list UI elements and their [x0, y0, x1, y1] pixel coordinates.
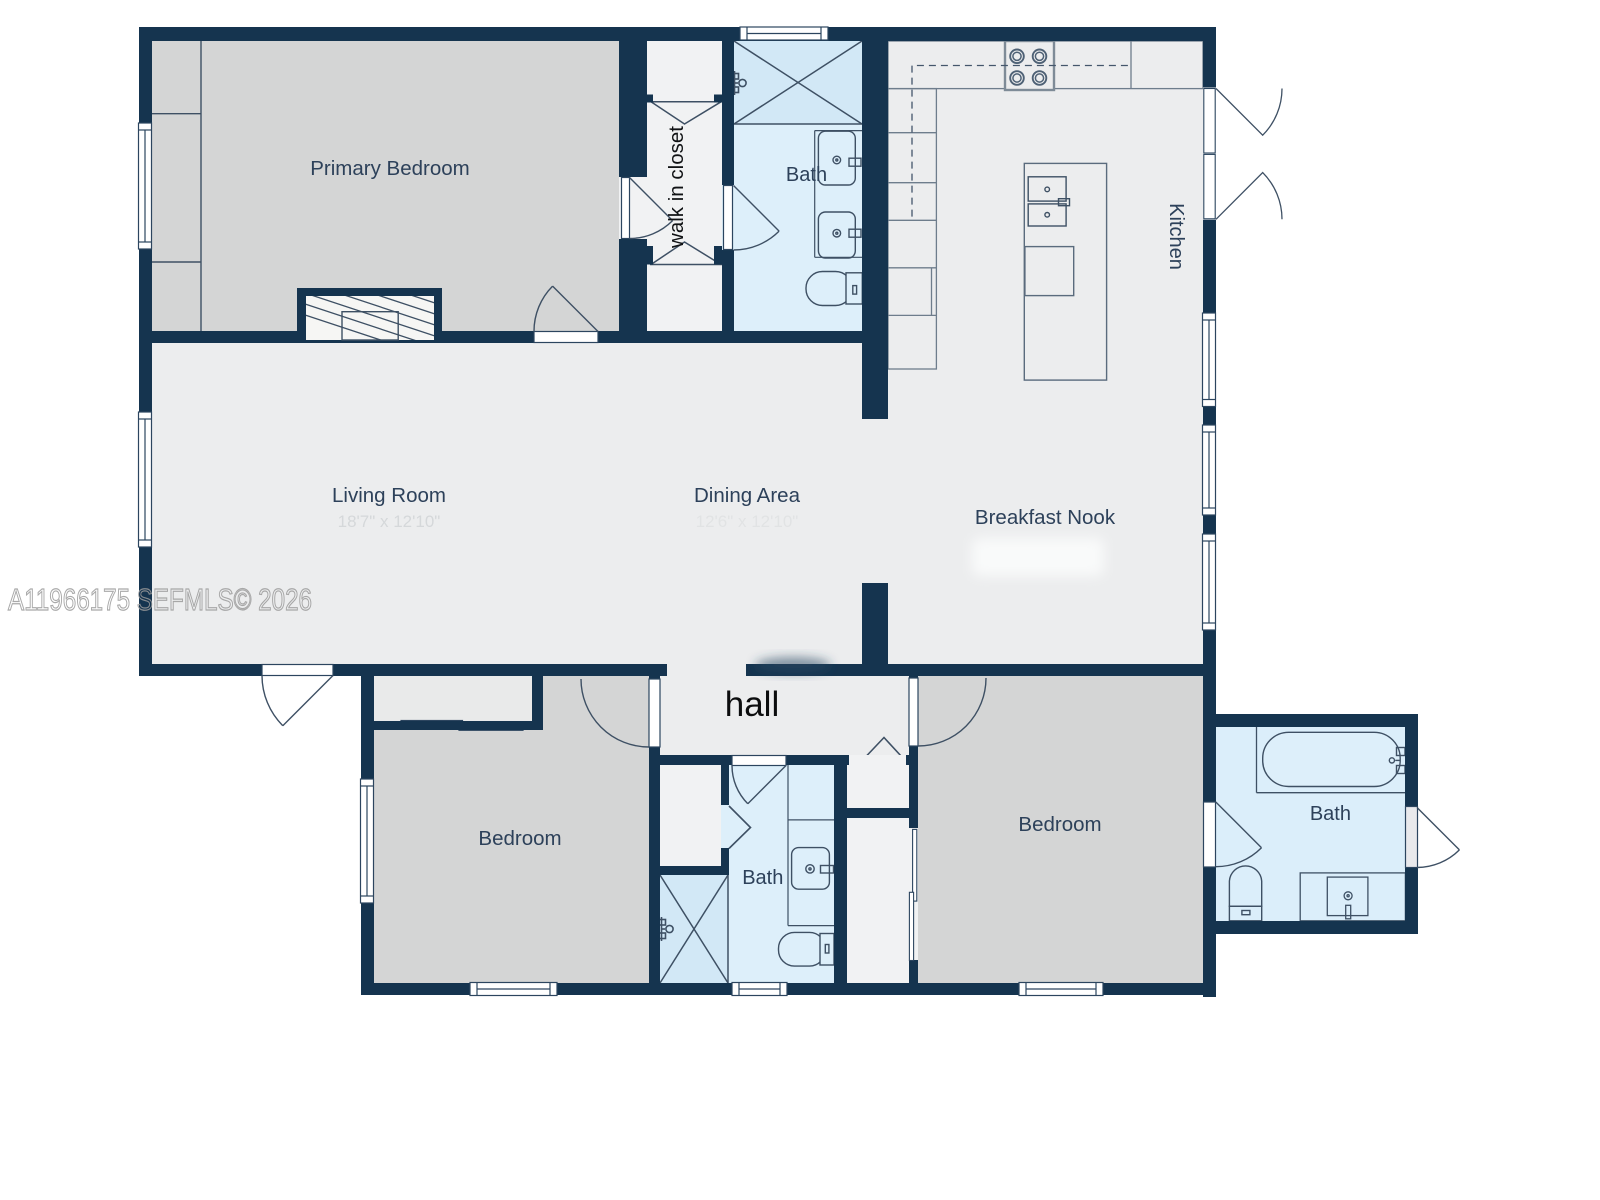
svg-text:Bath: Bath — [1310, 803, 1351, 825]
svg-text:Bath: Bath — [786, 164, 827, 186]
svg-text:18'7" x 12'10": 18'7" x 12'10" — [338, 512, 441, 531]
svg-text:hall: hall — [725, 685, 779, 724]
svg-text:Primary Bedroom: Primary Bedroom — [310, 157, 470, 180]
svg-text:Bedroom: Bedroom — [1018, 813, 1101, 836]
svg-text:Bedroom: Bedroom — [478, 827, 561, 850]
svg-text:Breakfast Nook: Breakfast Nook — [975, 506, 1116, 529]
svg-text:Dining Area: Dining Area — [694, 484, 801, 507]
svg-text:Kitchen: Kitchen — [1165, 203, 1187, 270]
svg-text:Living Room: Living Room — [332, 484, 446, 507]
svg-text:Bath: Bath — [742, 867, 783, 889]
svg-text:A11966175 SEFMLS© 2026: A11966175 SEFMLS© 2026 — [8, 582, 312, 617]
svg-text:walk in closet: walk in closet — [665, 126, 688, 249]
svg-text:12'6" x 12'10": 12'6" x 12'10" — [696, 512, 799, 531]
